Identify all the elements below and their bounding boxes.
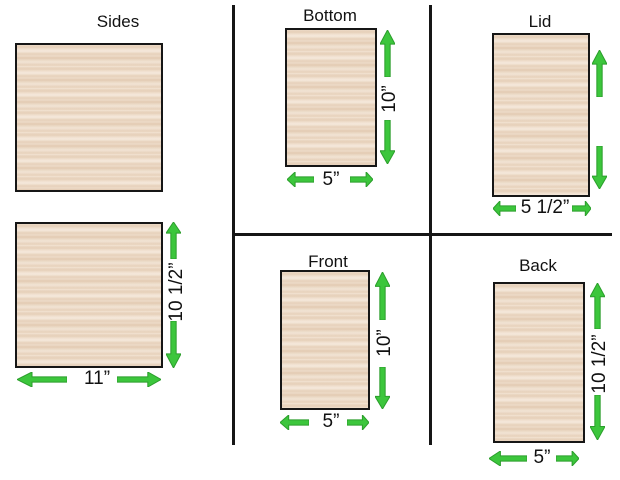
arrow-right-icon — [350, 172, 373, 187]
arrow-left-icon — [489, 451, 527, 466]
back-height-dimension-label: 10 1/2” — [589, 329, 611, 399]
back-width-dimension-label: 5” — [527, 447, 557, 469]
bottom-height-dimension-label: 10” — [379, 71, 401, 127]
arrow-up-icon — [380, 30, 395, 77]
arrow-up-icon — [166, 222, 181, 259]
arrow-down-icon — [166, 321, 181, 368]
lid-panel — [492, 33, 590, 197]
divider-vertical-right — [429, 5, 432, 445]
arrow-down-icon — [380, 120, 395, 164]
sides-panel-top — [15, 43, 163, 192]
arrow-left-icon — [280, 415, 309, 430]
front-height-dimension-label: 10” — [374, 315, 396, 371]
divider-vertical-left — [232, 5, 235, 445]
cut-plan-diagram: Sides 10 1/2” 11” Bottom 10” 5” Lid 5 1/… — [0, 0, 620, 480]
arrow-right-icon — [556, 451, 579, 466]
front-width-dimension-label: 5” — [316, 411, 346, 433]
front-panel — [280, 270, 370, 410]
arrow-down-icon — [375, 367, 390, 409]
arrow-down-icon — [592, 146, 607, 189]
bottom-label: Bottom — [280, 5, 380, 27]
arrow-left-icon — [287, 172, 314, 187]
bottom-panel — [285, 28, 377, 167]
arrow-right-icon — [117, 372, 161, 387]
back-label: Back — [488, 255, 588, 277]
arrow-up-icon — [590, 283, 605, 329]
sides-width-dimension-label: 11” — [77, 368, 117, 390]
divider-horizontal — [234, 233, 612, 236]
arrow-down-icon — [590, 395, 605, 440]
arrow-right-icon — [347, 415, 369, 430]
sides-panel-bottom — [15, 222, 163, 368]
lid-width-dimension-label: 5 1/2” — [510, 197, 580, 219]
lid-label: Lid — [490, 11, 590, 33]
arrow-left-icon — [17, 372, 67, 387]
sides-label: Sides — [68, 11, 168, 33]
arrow-up-icon — [375, 272, 390, 320]
bottom-width-dimension-label: 5” — [316, 169, 346, 191]
arrow-right-icon — [572, 201, 591, 216]
back-panel — [493, 282, 585, 443]
sides-height-dimension-label: 10 1/2” — [166, 257, 188, 327]
arrow-up-icon — [592, 50, 607, 97]
